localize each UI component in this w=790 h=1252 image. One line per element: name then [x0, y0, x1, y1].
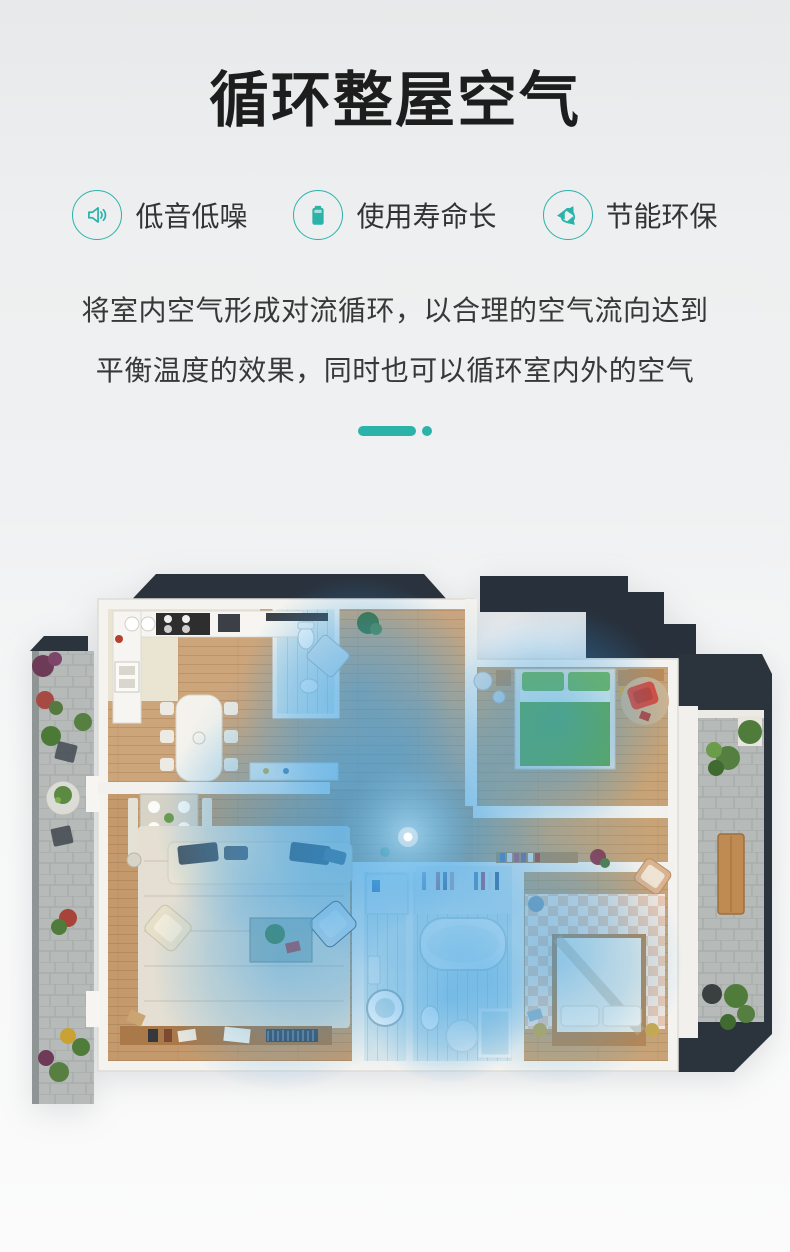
feature-label: 使用寿命长 [356, 195, 496, 235]
divider-dot [422, 426, 432, 436]
section-divider [0, 426, 790, 436]
page-title: 循环整屋空气 [0, 52, 790, 139]
battery-icon [293, 190, 343, 240]
balcony-right-bench [718, 834, 744, 914]
recycle-icon [543, 190, 593, 240]
speaker-icon [72, 190, 122, 240]
balcony-left-table [46, 781, 80, 815]
feature-label: 节能环保 [606, 195, 718, 235]
feature-item-low-noise: 低音低噪 [72, 190, 247, 240]
balcony-right [676, 706, 764, 1038]
balcony-left [32, 651, 94, 1104]
feature-item-eco: 节能环保 [543, 190, 718, 240]
feature-list: 低音低噪 使用寿命长 [0, 190, 790, 240]
divider-bar [358, 426, 416, 436]
airflow-device-dot [398, 827, 418, 847]
feature-item-long-life: 使用寿命长 [293, 190, 496, 240]
floorplan-illustration [28, 566, 772, 1112]
description-paragraph: 将室内空气形成对流循环，以合理的空气流向达到 平衡温度的效果，同时也可以循环室内… [0, 281, 790, 401]
feature-label: 低音低噪 [135, 195, 247, 235]
description-line-1: 将室内空气形成对流循环，以合理的空气流向达到 [0, 281, 790, 341]
promo-page: 循环整屋空气 低音低噪 使用寿命长 [0, 0, 790, 1252]
description-line-2: 平衡温度的效果，同时也可以循环室内外的空气 [0, 341, 790, 401]
